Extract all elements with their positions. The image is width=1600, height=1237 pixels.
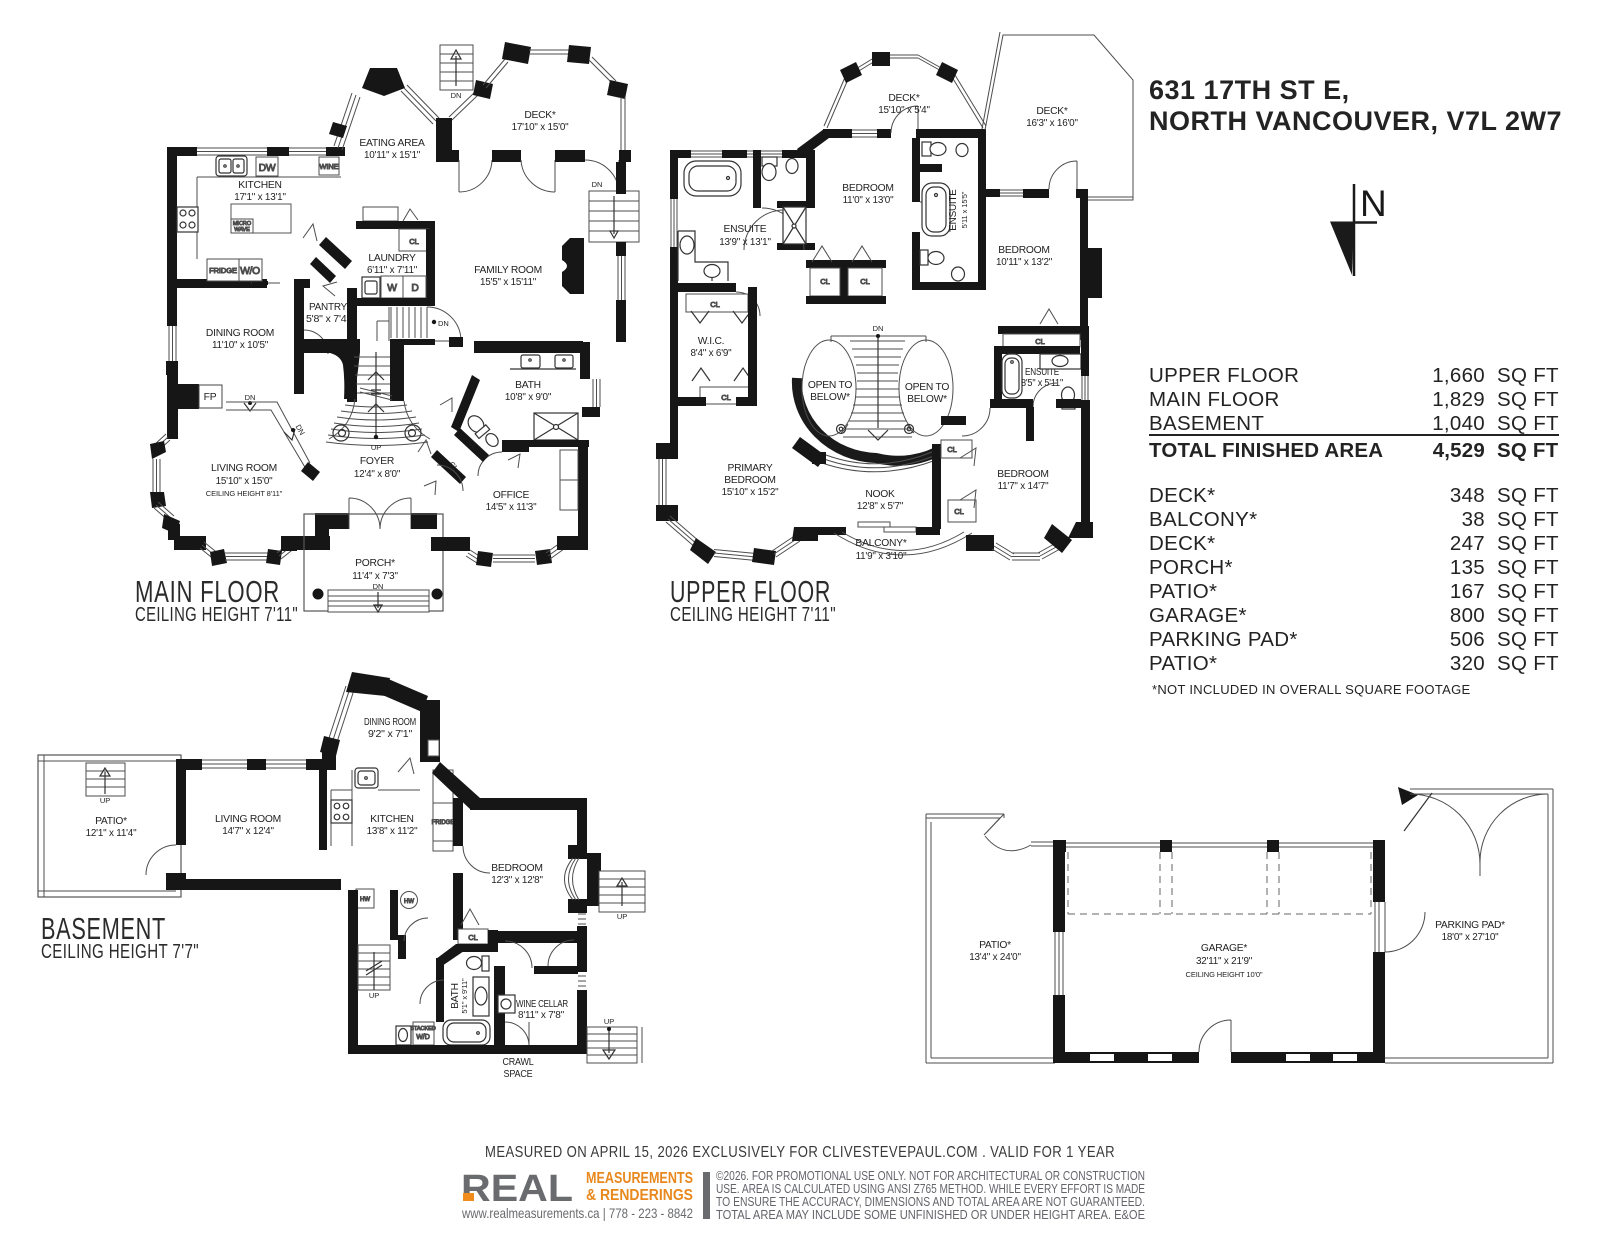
svg-text:UP: UP [100, 796, 110, 805]
svg-text:MAIN FLOOR: MAIN FLOOR [1149, 388, 1280, 411]
svg-text:SQ FT: SQ FT [1497, 556, 1559, 579]
svg-text:CL: CL [468, 933, 477, 942]
svg-text:11'7" x 14'7": 11'7" x 14'7" [998, 481, 1050, 492]
svg-text:15'5" x 15'11": 15'5" x 15'11" [480, 277, 537, 288]
svg-text:631 17TH ST E,: 631 17TH ST E, [1149, 75, 1350, 105]
svg-text:1,829: 1,829 [1432, 388, 1485, 411]
svg-text:& RENDERINGS: & RENDERINGS [586, 1187, 693, 1204]
svg-text:DECK*: DECK* [1149, 532, 1215, 555]
svg-text:CL: CL [820, 277, 829, 286]
svg-text:CEILING HEIGHT 7'7": CEILING HEIGHT 7'7" [41, 941, 199, 963]
svg-text:BATH: BATH [515, 380, 541, 391]
svg-text:GARAGE*: GARAGE* [1149, 604, 1247, 627]
svg-text:1,040: 1,040 [1432, 412, 1485, 435]
svg-text:CL: CL [947, 445, 956, 454]
svg-text:FOYER: FOYER [360, 456, 394, 467]
svg-text:HW: HW [404, 899, 414, 905]
svg-text:PORCH*: PORCH* [1149, 556, 1233, 579]
svg-text:14'5" x 11'3": 14'5" x 11'3" [486, 502, 538, 513]
svg-text:5'1" x 9'11": 5'1" x 9'11" [460, 978, 469, 1014]
svg-text:WAVE: WAVE [234, 227, 250, 233]
svg-text:D: D [411, 283, 418, 294]
svg-text:11'10" x 10'5": 11'10" x 10'5" [212, 340, 269, 351]
svg-text:BELOW*: BELOW* [907, 394, 947, 405]
svg-text:MEASURED ON APRIL 15, 2026 EXC: MEASURED ON APRIL 15, 2026 EXCLUSIVELY F… [485, 1144, 1115, 1161]
svg-text:BEDROOM: BEDROOM [842, 183, 893, 194]
svg-text:SQ FT: SQ FT [1497, 652, 1559, 675]
svg-text:W.I.C.: W.I.C. [698, 336, 725, 347]
svg-text:BASEMENT: BASEMENT [1149, 412, 1264, 435]
svg-text:SQ FT: SQ FT [1497, 439, 1559, 462]
svg-text:GARAGE*: GARAGE* [1201, 943, 1248, 954]
svg-text:DN: DN [373, 582, 384, 591]
svg-text:9'2" x 7'1": 9'2" x 7'1" [368, 729, 413, 740]
svg-text:DECK*: DECK* [1036, 106, 1068, 117]
svg-text:NOOK: NOOK [865, 489, 895, 500]
svg-text:6'11" x 7'11": 6'11" x 7'11" [367, 265, 418, 276]
svg-text:38: 38 [1462, 508, 1485, 531]
svg-text:W/O: W/O [240, 266, 260, 277]
svg-text:14'7" x 12'4": 14'7" x 12'4" [222, 826, 274, 837]
svg-text:CRAWL: CRAWL [503, 1057, 534, 1068]
svg-text:167: 167 [1450, 580, 1485, 603]
svg-text:BEDROOM: BEDROOM [998, 245, 1049, 256]
svg-text:BEDROOM: BEDROOM [491, 863, 542, 874]
svg-text:TOTAL AREA MAY INCLUDE SOME UN: TOTAL AREA MAY INCLUDE SOME UNFINISHED O… [716, 1207, 1145, 1222]
svg-text:DN: DN [873, 324, 884, 333]
svg-text:REAL: REAL [461, 1168, 573, 1210]
svg-text:PRIMARY: PRIMARY [728, 463, 773, 474]
svg-text:CEILING HEIGHT 8'11": CEILING HEIGHT 8'11" [206, 489, 283, 498]
svg-text:OPEN TO: OPEN TO [905, 382, 949, 393]
svg-text:DN: DN [294, 423, 307, 437]
svg-text:12'1" x 11'4": 12'1" x 11'4" [86, 828, 138, 839]
svg-text:DECK*: DECK* [1149, 484, 1215, 507]
svg-text:CL: CL [409, 237, 418, 246]
svg-text:506: 506 [1450, 628, 1485, 651]
svg-text:ENSUITE: ENSUITE [724, 224, 767, 235]
svg-text:DN: DN [592, 180, 603, 189]
svg-text:PORCH*: PORCH* [355, 558, 395, 569]
svg-text:PATIO*: PATIO* [95, 816, 127, 827]
svg-text:HW: HW [360, 897, 370, 903]
svg-text:12'4" x 8'0": 12'4" x 8'0" [354, 469, 401, 480]
svg-text:DW: DW [259, 163, 276, 174]
svg-text:5'8" x 7'4": 5'8" x 7'4" [306, 314, 351, 325]
svg-text:BEDROOM: BEDROOM [997, 469, 1048, 480]
svg-text:DN: DN [451, 91, 462, 100]
svg-text:SQ FT: SQ FT [1497, 484, 1559, 507]
svg-text:15'10" x 5'4": 15'10" x 5'4" [878, 105, 930, 116]
svg-text:DECK*: DECK* [524, 110, 556, 121]
svg-text:13'9" x 13'1": 13'9" x 13'1" [719, 237, 771, 248]
svg-text:SQ FT: SQ FT [1497, 364, 1559, 387]
svg-text:16'3" x 16'0": 16'3" x 16'0" [1026, 118, 1078, 129]
svg-text:10'11" x 15'1": 10'11" x 15'1" [364, 150, 421, 161]
svg-text:N: N [1360, 183, 1387, 224]
svg-text:CL: CL [1035, 337, 1044, 346]
svg-text:MEASUREMENTS: MEASUREMENTS [586, 1170, 693, 1187]
svg-text:1,660: 1,660 [1432, 364, 1485, 387]
svg-text:CL: CL [710, 300, 719, 309]
svg-text:KITCHEN: KITCHEN [238, 180, 281, 191]
svg-text:TOTAL FINISHED AREA: TOTAL FINISHED AREA [1149, 439, 1383, 462]
svg-text:EATING AREA: EATING AREA [359, 138, 425, 149]
svg-text:15'10" x 15'2": 15'10" x 15'2" [722, 487, 780, 498]
svg-text:LIVING ROOM: LIVING ROOM [211, 463, 277, 474]
svg-text:SQ FT: SQ FT [1497, 604, 1559, 627]
svg-text:DN: DN [438, 319, 449, 328]
svg-text:ENSUITE: ENSUITE [948, 189, 959, 231]
svg-text:13'4" x 24'0": 13'4" x 24'0" [969, 952, 1021, 963]
svg-text:8'4" x 6'9": 8'4" x 6'9" [691, 348, 733, 359]
svg-text:SQ FT: SQ FT [1497, 580, 1559, 603]
svg-text:WINE CELLAR: WINE CELLAR [516, 999, 568, 1010]
svg-text:13'8" x 11'2": 13'8" x 11'2" [367, 826, 419, 837]
svg-text:FRIDGE: FRIDGE [209, 266, 237, 275]
svg-text:*NOT INCLUDED IN OVERALL SQUAR: *NOT INCLUDED IN OVERALL SQUARE FOOTAGE [1152, 682, 1470, 697]
svg-text:W: W [387, 283, 397, 294]
svg-text:17'1" x 13'1": 17'1" x 13'1" [234, 192, 286, 203]
svg-text:LIVING ROOM: LIVING ROOM [215, 814, 281, 825]
svg-text:BALCONY*: BALCONY* [855, 538, 906, 549]
svg-text:BEDROOM: BEDROOM [724, 475, 775, 486]
svg-text:WINE: WINE [319, 162, 338, 171]
svg-text:11'0" x 13'0": 11'0" x 13'0" [843, 195, 895, 206]
svg-text:SQ FT: SQ FT [1497, 532, 1559, 555]
svg-text:8'11" x 7'8": 8'11" x 7'8" [518, 1010, 565, 1021]
svg-text:135: 135 [1450, 556, 1485, 579]
svg-text:5'11 x 15'5": 5'11 x 15'5" [960, 191, 969, 228]
svg-text:FP: FP [204, 392, 217, 403]
svg-text:12'8" x 5'7": 12'8" x 5'7" [857, 501, 904, 512]
svg-text:OPEN TO: OPEN TO [808, 380, 852, 391]
svg-text:LAUNDRY: LAUNDRY [368, 253, 416, 264]
svg-text:PARKING PAD*: PARKING PAD* [1435, 920, 1505, 931]
svg-text:8'5" x 5'11": 8'5" x 5'11" [1021, 378, 1064, 389]
svg-text:CEILING HEIGHT 7'11": CEILING HEIGHT 7'11" [670, 604, 836, 626]
svg-text:SPACE: SPACE [504, 1069, 533, 1080]
svg-text:800: 800 [1450, 604, 1485, 627]
svg-text:17'10" x 15'0": 17'10" x 15'0" [512, 122, 570, 133]
svg-text:FAMILY ROOM: FAMILY ROOM [474, 265, 542, 276]
svg-text:SQ FT: SQ FT [1497, 628, 1559, 651]
svg-text:CEILING HEIGHT 7'11": CEILING HEIGHT 7'11" [135, 604, 298, 626]
svg-text:10'8" x 9'0": 10'8" x 9'0" [505, 392, 552, 403]
svg-text:CL: CL [860, 277, 869, 286]
svg-text:UP: UP [369, 991, 379, 1000]
svg-text:CEILING HEIGHT 10'0": CEILING HEIGHT 10'0" [1186, 970, 1263, 979]
svg-text:www.realmeasurements.ca | 778: www.realmeasurements.ca | 778 - 223 - 88… [461, 1205, 693, 1221]
svg-text:UP: UP [371, 443, 381, 452]
svg-text:11'9" x 3'10": 11'9" x 3'10" [856, 551, 908, 562]
svg-text:247: 247 [1450, 532, 1485, 555]
svg-text:SQ FT: SQ FT [1497, 412, 1559, 435]
svg-text:DINING ROOM: DINING ROOM [206, 328, 274, 339]
svg-text:4,529: 4,529 [1433, 439, 1485, 462]
svg-text:DECK*: DECK* [888, 93, 920, 104]
svg-text:18'0" x 27'10": 18'0" x 27'10" [1442, 932, 1500, 943]
svg-text:BALCONY*: BALCONY* [1149, 508, 1257, 531]
svg-text:32'11" x 21'9": 32'11" x 21'9" [1196, 956, 1253, 967]
svg-text:11'4" x 7'3": 11'4" x 7'3" [352, 571, 398, 582]
svg-text:DINING ROOM: DINING ROOM [364, 717, 416, 728]
svg-text:320: 320 [1450, 652, 1485, 675]
svg-text:PARKING PAD*: PARKING PAD* [1149, 628, 1298, 651]
svg-text:FRIDGE: FRIDGE [432, 820, 455, 826]
svg-text:12'3" x 12'8": 12'3" x 12'8" [491, 875, 543, 886]
svg-text:UPPER FLOOR: UPPER FLOOR [1149, 364, 1299, 387]
svg-text:PATIO*: PATIO* [1149, 652, 1217, 675]
svg-text:BELOW*: BELOW* [810, 392, 850, 403]
svg-text:W/D: W/D [416, 1034, 430, 1041]
svg-text:SQ FT: SQ FT [1497, 388, 1559, 411]
svg-text:PATIO*: PATIO* [1149, 580, 1217, 603]
svg-text:CL: CL [954, 507, 963, 516]
svg-text:DN: DN [245, 393, 256, 402]
svg-text:UP: UP [604, 1017, 614, 1026]
svg-text:348: 348 [1450, 484, 1485, 507]
svg-text:PANTRY: PANTRY [309, 302, 347, 313]
svg-text:15'10" x 15'0": 15'10" x 15'0" [216, 476, 274, 487]
svg-text:NORTH VANCOUVER, V7L 2W7: NORTH VANCOUVER, V7L 2W7 [1149, 106, 1562, 136]
svg-text:STACKED: STACKED [410, 1026, 436, 1032]
svg-text:10'11" x 13'2": 10'11" x 13'2" [996, 257, 1053, 268]
svg-text:PATIO*: PATIO* [979, 940, 1011, 951]
svg-text:CL: CL [721, 393, 730, 402]
svg-text:KITCHEN: KITCHEN [370, 814, 413, 825]
svg-text:SQ FT: SQ FT [1497, 508, 1559, 531]
svg-text:OFFICE: OFFICE [493, 490, 530, 501]
svg-text:UP: UP [617, 912, 627, 921]
